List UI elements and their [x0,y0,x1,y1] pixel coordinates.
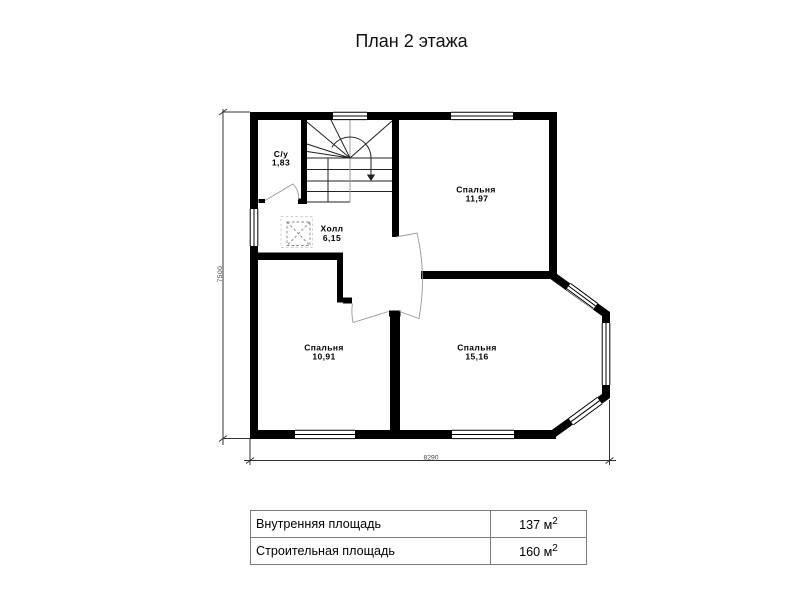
svg-text:8290: 8290 [423,455,438,462]
svg-text:6,15: 6,15 [323,233,341,243]
svg-text:Холл: Холл [321,224,344,234]
svg-text:7500: 7500 [217,266,224,283]
svg-text:1,83: 1,83 [272,158,290,168]
svg-text:15,16: 15,16 [465,352,488,362]
svg-text:10,91: 10,91 [312,352,335,362]
svg-text:11,97: 11,97 [466,193,489,203]
